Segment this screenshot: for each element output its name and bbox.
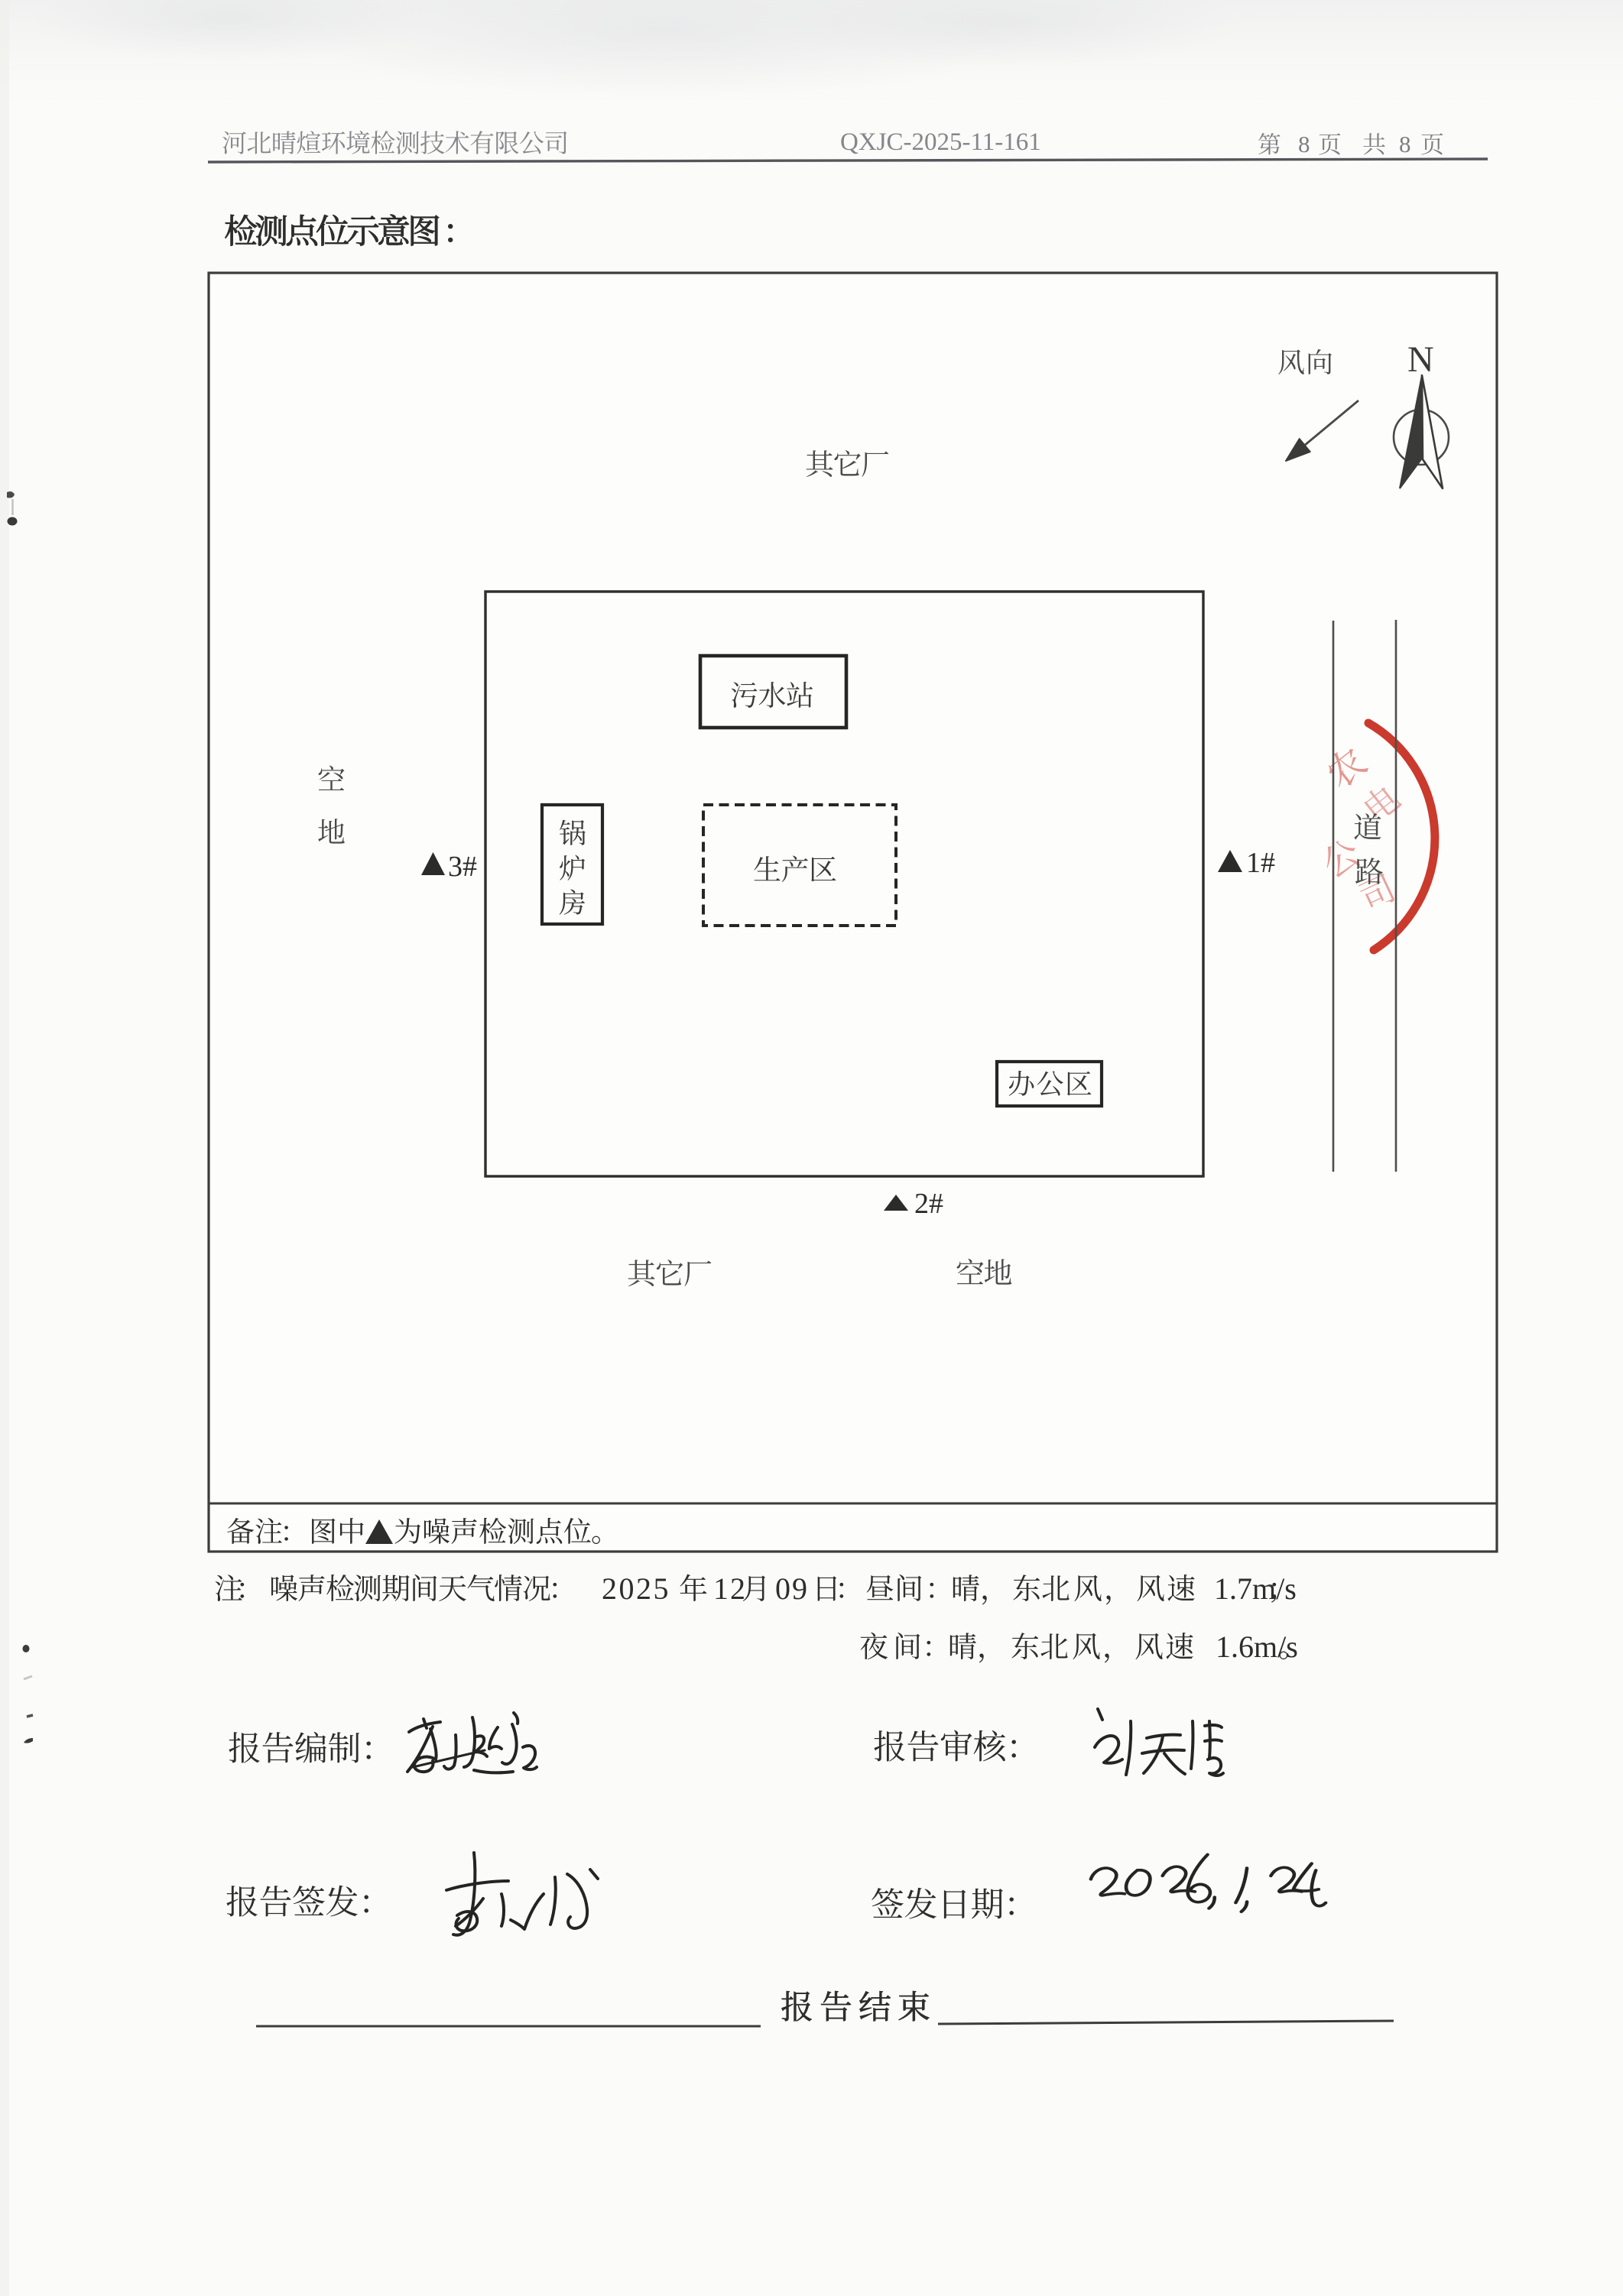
- svg-text:QXJC-2025-11-161: QXJC-2025-11-161: [840, 128, 1041, 156]
- svg-text:8: 8: [1298, 131, 1310, 157]
- svg-text:2025: 2025: [602, 1571, 670, 1606]
- svg-text:8: 8: [1399, 131, 1411, 157]
- svg-text:N: N: [1407, 339, 1434, 380]
- svg-text:3#: 3#: [448, 851, 477, 883]
- svg-text:09: 09: [775, 1571, 809, 1606]
- svg-text:12: 12: [713, 1571, 747, 1606]
- svg-text:1#: 1#: [1246, 847, 1275, 879]
- svg-text:2#: 2#: [914, 1188, 943, 1220]
- svg-text:1.7m/s: 1.7m/s: [1214, 1571, 1297, 1606]
